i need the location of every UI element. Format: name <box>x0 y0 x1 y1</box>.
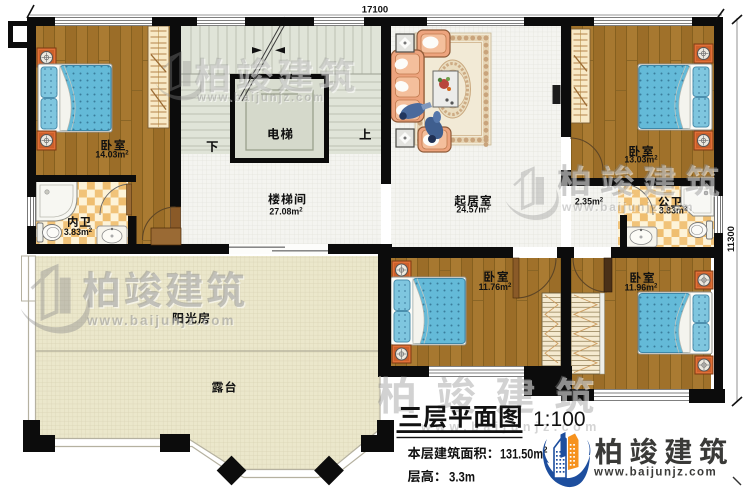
svg-text:131.50m: 131.50m <box>500 447 543 462</box>
svg-text:www.baijunjz.com: www.baijunjz.com <box>561 200 694 214</box>
svg-text:www.baijunjz.com: www.baijunjz.com <box>86 313 236 328</box>
svg-text:3.3m: 3.3m <box>449 470 475 485</box>
svg-text:17100: 17100 <box>362 5 388 16</box>
svg-text:24.57m2: 24.57m2 <box>456 205 490 215</box>
svg-text:www.baijunjz.com: www.baijunjz.com <box>593 467 717 479</box>
svg-text:11.96m2: 11.96m2 <box>625 283 658 293</box>
svg-text:3.83m2: 3.83m2 <box>64 227 93 237</box>
svg-text:13.03m2: 13.03m2 <box>624 155 658 165</box>
svg-text:www.baijunjz.com: www.baijunjz.com <box>196 92 325 104</box>
svg-text:1:100: 1:100 <box>533 408 586 431</box>
svg-text:11300: 11300 <box>726 226 737 252</box>
svg-text:11.76m2: 11.76m2 <box>479 282 512 292</box>
svg-text:14.03m2: 14.03m2 <box>95 150 129 160</box>
svg-text:27.08m2: 27.08m2 <box>269 207 303 217</box>
